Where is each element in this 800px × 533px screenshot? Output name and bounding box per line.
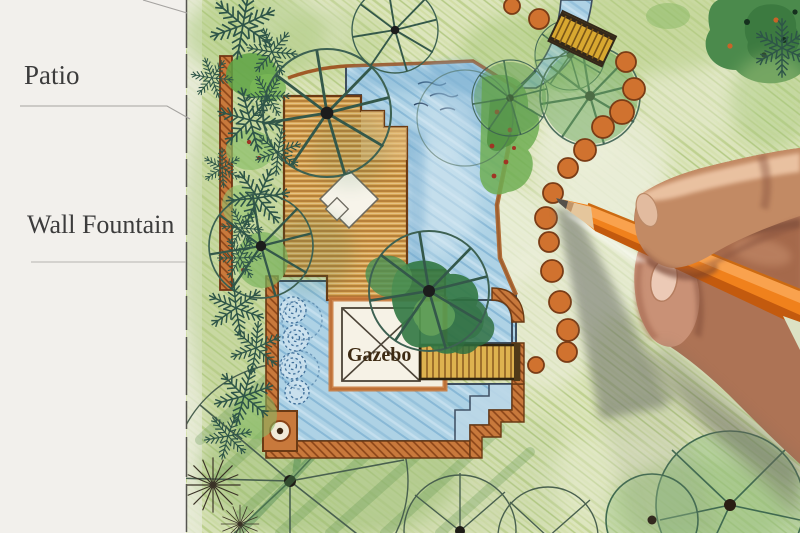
svg-text:Wall Fountain: Wall Fountain (27, 210, 174, 239)
svg-text:Patio: Patio (24, 60, 80, 90)
svg-text:Gazebo: Gazebo (347, 344, 411, 366)
